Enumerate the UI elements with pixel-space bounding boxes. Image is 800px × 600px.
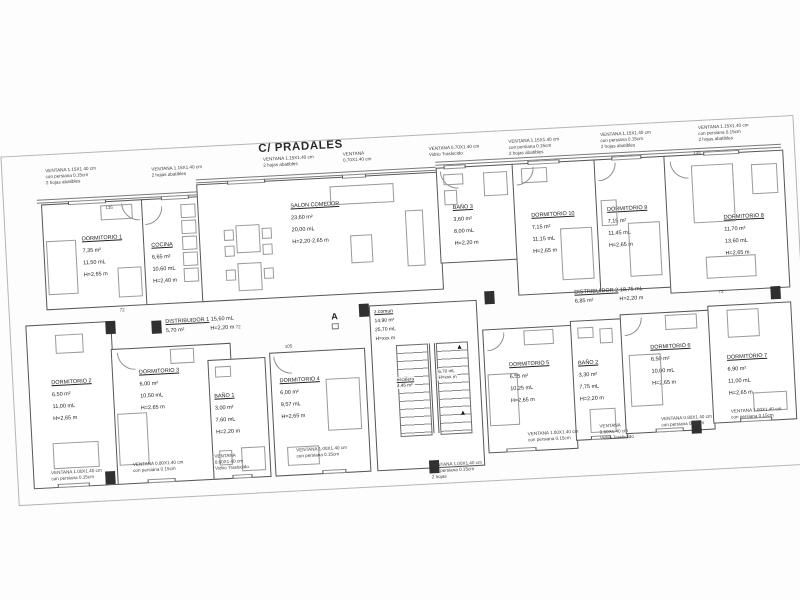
window-note: VENTANA 1.15X1.40 cmcon persiana 0.15cm2…	[45, 166, 97, 186]
chair	[224, 245, 235, 257]
stair-flight	[396, 343, 433, 437]
dresser	[706, 254, 757, 279]
desk	[751, 163, 779, 194]
room-height: H=2,40 m	[153, 274, 178, 287]
dimension-label: 72	[236, 324, 241, 329]
stair-direction-arrow: ▲	[456, 344, 463, 351]
bed	[53, 441, 100, 469]
sink	[215, 366, 232, 378]
section-marker-a: A	[331, 311, 339, 329]
wardrobe	[665, 313, 698, 330]
chair	[262, 227, 273, 239]
window-note: VENTANA 1.15X1.40 cmcon persiana 0.15cm2…	[508, 136, 560, 156]
dining-table	[235, 224, 260, 253]
chair	[224, 229, 235, 241]
room-name: DORMITORIO 10	[531, 208, 575, 222]
corridor-name: DISTRIBUIDOR 1	[165, 317, 209, 325]
bed	[691, 163, 736, 223]
chair	[264, 267, 275, 279]
column-marker	[484, 291, 495, 305]
kitchen-unit	[183, 251, 199, 266]
room-height: H=2,20-2,65 m	[292, 234, 341, 249]
stairs-area: 4,45 m²	[397, 382, 415, 389]
room-height: H=2,65 m	[281, 409, 322, 423]
room-height: H=2,65 m	[53, 411, 94, 425]
column-marker	[105, 471, 116, 485]
window-note: VENTANA 1.15X1.40 cmcon persiana 0.15cm2…	[600, 129, 652, 149]
column-marker	[770, 286, 781, 300]
stair-flight	[436, 341, 473, 435]
section-letter: A	[331, 311, 338, 321]
toilet	[444, 190, 458, 206]
kitchen-unit	[180, 203, 196, 218]
chair	[262, 243, 273, 255]
corridor-length: 18,75 mL	[620, 286, 643, 293]
bed	[629, 353, 664, 407]
room-height: H=2,20 m	[216, 425, 241, 438]
dimension-label: 105	[285, 344, 293, 349]
room-name: DORMITORIO 1	[82, 231, 123, 245]
dimension-label: 72	[718, 289, 723, 294]
wardrobe	[170, 348, 195, 364]
corridor-area: 5,70 m²	[166, 326, 185, 336]
floorplan-sheet: C/ PRADALES DORMITORIO 1 7,35 m² 11,50 m…	[0, 0, 800, 600]
bed	[46, 240, 79, 295]
column-marker	[151, 320, 162, 334]
room-name: DORMITORIO 2	[51, 375, 92, 389]
bed	[326, 377, 363, 431]
corridor-height: H=2,20 m	[210, 324, 234, 334]
wardrobe	[601, 199, 618, 226]
room-height: H=2,20 m	[454, 237, 479, 250]
room-name: DORMITORIO 6	[650, 340, 691, 354]
window-note: VENTANA0.70X1.40 cm	[343, 150, 372, 163]
sofa	[405, 210, 426, 267]
sofa	[329, 183, 394, 205]
wardrobe	[523, 329, 554, 346]
room-height: H=2,20 m	[580, 392, 605, 405]
window-note: VENTANA 1.00X1.40 cmcon persiana 0.15cm2…	[431, 460, 483, 480]
window-note: VENTANA0.60X1.40 cmVidrio Traslucido	[599, 422, 634, 441]
bed	[117, 412, 150, 465]
room-dormitorio-2: DORMITORIO 2 6,50 m² 11,00 mL H=2,65 m	[25, 321, 119, 489]
stair-direction-arrow: ▲	[459, 410, 466, 417]
room-salon-comedor: SALON COMEDOR 23,60 m² 20,00 mL H=2,20-2…	[196, 172, 444, 303]
floorplan: C/ PRADALES DORMITORIO 1 7,35 m² 11,50 m…	[12, 145, 800, 526]
shower	[483, 171, 508, 196]
room-name: DORMITORIO 7	[727, 350, 768, 364]
corridor-height: H=2,20 m	[619, 294, 643, 304]
bed	[488, 373, 521, 426]
sink	[577, 327, 594, 339]
room-zona-comun: z.comun 14,90 m² 25,70 mL H=xxx m escale…	[369, 300, 486, 471]
stairs-height: H=xxx m	[438, 374, 456, 381]
column-marker	[359, 303, 370, 317]
window-note: VENTANA0.60X1.40 cmVidrio Traslucido	[214, 452, 249, 471]
corridor-name: DISTRIBUIDOR 2	[574, 287, 618, 295]
room-height: H=xxx m	[375, 334, 396, 344]
corridor-area: 6,85 m²	[575, 297, 594, 307]
coffee-table	[350, 234, 373, 263]
stairs-label-2: 6,70 mL H=xxx m	[437, 368, 458, 381]
corridor-length: 15,60 mL	[211, 316, 234, 323]
bed	[560, 227, 595, 281]
kitchen-unit	[181, 219, 197, 234]
kitchen-unit	[182, 235, 198, 250]
desk	[726, 308, 759, 338]
chair	[226, 269, 237, 281]
wardrobe	[55, 333, 84, 353]
kitchen-unit	[184, 267, 200, 282]
dimension-label: 135	[693, 150, 701, 155]
room-dormitorio-7: DORMITORIO 7 6,90 m² 11,00 mL H=2,65 m	[707, 301, 797, 423]
room-name: DORMITORIO 4	[279, 373, 320, 387]
room-name: DORMITORIO 3	[139, 365, 180, 379]
toilet	[599, 328, 613, 344]
room-name: DORMITORIO 5	[509, 357, 550, 371]
column-marker	[105, 321, 116, 335]
dining-table	[237, 262, 262, 291]
dimension-label: 135	[105, 205, 113, 210]
bed	[628, 221, 663, 277]
dimension-label: 72	[120, 307, 125, 312]
stairs-label: escalera 4,45 m²	[396, 376, 416, 389]
desk	[117, 266, 143, 297]
room-name: COCINA	[151, 239, 176, 252]
window-note: VENTANA 1.15X1.40 cmcon persiana 0.15cm2…	[698, 122, 750, 142]
